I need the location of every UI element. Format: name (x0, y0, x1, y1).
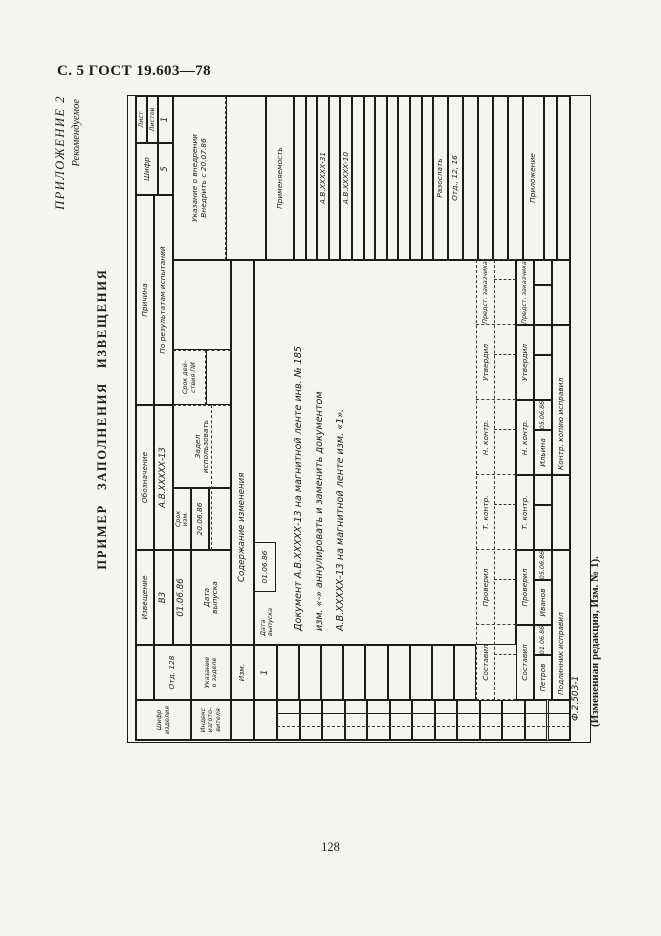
cell-blank (173, 260, 231, 350)
cell-row (321, 645, 343, 700)
sig-approved-label: Утвердил (516, 325, 534, 400)
cell-attachment-header: Приложение (523, 96, 544, 260)
cell-reason-label: Причина (136, 195, 154, 405)
page-number: 128 (0, 840, 661, 855)
cell-row (502, 700, 525, 740)
cell-row (457, 700, 480, 740)
sig-checked-name: Иванов (534, 580, 552, 625)
cell-change-no-header: Изм. (231, 645, 254, 700)
cell-manufacturer-index-label: Индекс изгото- вителя (191, 700, 231, 740)
cell-inner-issue-date-label: Дата выпуска (257, 594, 277, 640)
sig-compiled-name: Петров (534, 655, 552, 700)
cell-blank (226, 96, 266, 260)
sig-dashed-customer-rep: Предст. заказчика (478, 260, 494, 325)
cell-notice-number: В3 (154, 550, 173, 645)
cell-applicability-header: Применяемость (266, 96, 294, 260)
text-change-line-1: Документ А.В.ХХХХХ-13 на магнитной ленте… (292, 255, 306, 635)
cell-blank (552, 475, 570, 550)
cell-change-content-header: Содержание изменения (231, 260, 254, 645)
cell-row (388, 645, 410, 700)
form-code-label: Ф.2.503-1 (571, 676, 581, 721)
dashed-divider-line (476, 699, 516, 700)
cell-inner-issue-date-value: 01.06.86 (254, 542, 276, 592)
cell-applicability-entry: А.В.ХХХХХ-10 (340, 96, 352, 260)
dashed-divider-line (494, 429, 516, 430)
cell-sheets-label: Листов (147, 96, 158, 143)
cell-row (365, 645, 387, 700)
sig-blank (534, 475, 552, 505)
cell-blank (206, 350, 231, 405)
dashed-divider-line (494, 260, 495, 700)
sig-dashed-approved: Утвердил (478, 325, 494, 400)
sig-compiled-label: Составил (516, 625, 534, 700)
cell-implementation-note: Указание о внедрении Внедрить с 20.07.86 (173, 96, 226, 260)
cell-row (322, 700, 345, 740)
cell-distribute-value: Отд., 12, 16 (448, 96, 463, 260)
cell-row (343, 645, 365, 700)
dashed-divider-line (476, 259, 516, 260)
cell-applicability-row (329, 96, 341, 260)
cell-change-no-value: 1 (254, 645, 277, 700)
cell-distribute-row (493, 96, 508, 260)
text-change-line-3: А.В.ХХХХХ-13 на магнитной ленте изм. «1»… (334, 255, 348, 635)
cell-applicability-row (387, 96, 399, 260)
example-title: ПРИМЕР ЗАПОЛНЕНИЯ ИЗВЕЩЕНИЯ (95, 93, 110, 745)
cell-row (548, 700, 571, 740)
cell-issue-date-value: 01.06.86 (173, 550, 191, 645)
dashed-divider-line (476, 260, 477, 700)
dashed-divider-line (476, 474, 516, 475)
landscape-sheet: ПРИЛОЖЕНИЕ 2 Рекомендуемое ПРИМЕР ЗАПОЛН… (45, 93, 601, 745)
cell-row (454, 645, 476, 700)
sig-dashed-ncontrol: Н. контр. (478, 400, 494, 475)
cell-row (390, 700, 413, 740)
sig-blank (534, 505, 552, 550)
cell-distribute-row (508, 96, 523, 260)
dashed-divider-line (494, 354, 516, 355)
cell-row (480, 700, 503, 740)
cell-applicability-row (422, 96, 433, 260)
sig-ncontrol-label: Н. контр. (516, 400, 534, 475)
sig-checked-date: 05.06.86 (534, 550, 552, 580)
cell-original-corrected: Подлинник исправил (552, 550, 570, 700)
appendix-label: ПРИЛОЖЕНИЕ 2 (53, 95, 68, 395)
dashed-divider-line (277, 726, 570, 727)
dashed-divider-line (494, 579, 516, 580)
dashed-divider-line (494, 504, 516, 505)
cell-applicability-row (306, 96, 318, 260)
page-header-gost-number: С. 5 ГОСТ 19.603—78 (57, 63, 211, 80)
cell-blank (231, 700, 254, 740)
cell-distribute-row (478, 96, 493, 260)
cell-row (410, 645, 432, 700)
amendment-note: (Измененная редакция, Изм. № 1). (589, 556, 601, 727)
cell-change-term-label: Срок изм. (173, 488, 191, 550)
cell-row (412, 700, 435, 740)
dashed-divider-line (494, 279, 516, 280)
cell-row (435, 700, 458, 740)
text-change-line-2: изм. «-» аннулировать и заменить докумен… (313, 255, 327, 635)
cell-row (277, 645, 299, 700)
sig-dashed-tcontrol: Т. контр. (478, 475, 494, 550)
sig-dashed-compiled: Составил (478, 625, 494, 700)
cell-sheet-label: Лист (136, 96, 147, 143)
cell-cipher-value: 5 (158, 143, 173, 195)
cell-designation-value: А.В.ХХХХХ-13 (154, 405, 173, 550)
cell-row (299, 645, 321, 700)
cell-blank (136, 645, 154, 700)
cell-notice-label: Извещение (136, 550, 154, 645)
dashed-divider-line (476, 399, 516, 400)
cell-reason-value: По результатам испытаний (154, 195, 173, 405)
sig-customer-rep-label: Предст. заказчика (516, 260, 534, 325)
cell-blank (552, 260, 570, 325)
cell-product-code-label: Шифр изделия (136, 700, 191, 740)
cell-department: Отд. 128 (154, 645, 191, 700)
cell-applicability-row (410, 96, 422, 260)
cell-cipher-label: Шифр (136, 143, 158, 195)
cell-attachment-row (544, 96, 557, 260)
cell-distribute-row (463, 96, 478, 260)
cell-distribute-header: Разослать (433, 96, 448, 260)
cell-row (345, 700, 368, 740)
cell-attachment-row (557, 96, 570, 260)
cell-designation-label: Обозначение (136, 405, 154, 550)
sig-tcontrol-label: Т. контр. (516, 475, 534, 550)
cell-blank (209, 488, 231, 550)
dashed-divider-line (211, 405, 212, 550)
cell-change-term-value: 20.06.86 (191, 488, 209, 550)
cell-sheets-value: 1 (158, 96, 173, 143)
sig-blank (534, 355, 552, 400)
dashed-divider-line (476, 549, 516, 550)
dashed-divider-line (476, 324, 516, 325)
cell-stock-instruction: Задел использовать (173, 405, 231, 488)
cell-row (367, 700, 390, 740)
cell-applicability-row (375, 96, 387, 260)
cell-applicability-row (294, 96, 306, 260)
sig-compiled-date: 01.06.86 (534, 625, 552, 655)
cell-row (432, 645, 454, 700)
cell-applicability-row (364, 96, 376, 260)
sig-ncontrol-date: 05.06.86 (534, 400, 552, 430)
cell-control-copy-corrected: Контр. копию исправил (552, 325, 570, 475)
dashed-divider-line (476, 624, 516, 625)
cell-row (277, 700, 300, 740)
cell-blank (254, 700, 277, 740)
cell-pi-validity-label: Срок дей- ствия ПИ (173, 350, 206, 405)
notice-form-table: Шифр изделияИндекс изгото- вителяОтд. 12… (135, 95, 571, 741)
sig-checked-label: Проверил (516, 550, 534, 625)
cell-row (300, 700, 323, 740)
appendix-recommended-label: Рекомендуемое (71, 99, 82, 399)
cell-stock-note-label: Указание о заделе (191, 645, 231, 700)
cell-applicability-row (352, 96, 364, 260)
cell-issue-date-label: Дата выпуска (191, 550, 231, 645)
cell-applicability-row (398, 96, 410, 260)
scanned-gost-page: { "page": { "header": "С. 5 ГОСТ 19.603—… (0, 0, 661, 936)
rotated-sheet-wrapper: ПРИЛОЖЕНИЕ 2 Рекомендуемое ПРИМЕР ЗАПОЛН… (45, 93, 601, 745)
dashed-divider-line (494, 654, 516, 655)
sig-ncontrol-name: Ильина (534, 430, 552, 475)
divider-line (277, 713, 570, 714)
sig-dashed-checked: Проверил (478, 550, 494, 625)
sig-blank (534, 285, 552, 325)
sig-blank (534, 325, 552, 355)
cell-applicability-entry: А.В.ХХХХХ-31 (317, 96, 329, 260)
sig-blank (534, 260, 552, 285)
cell-row (525, 700, 548, 740)
